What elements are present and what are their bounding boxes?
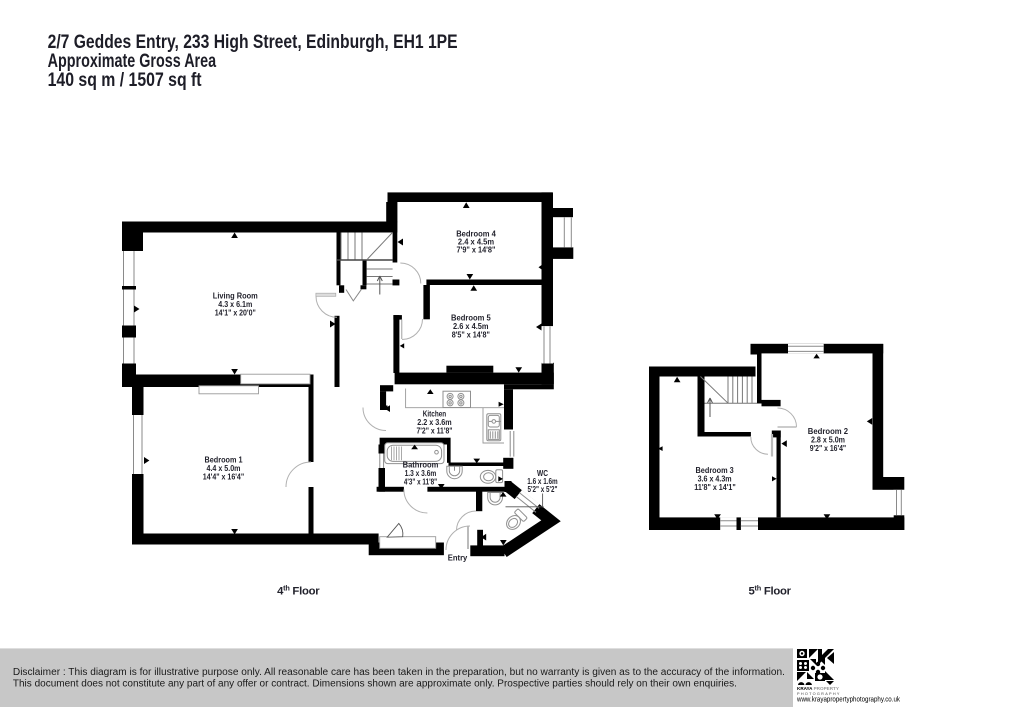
- svg-text:2/7 Geddes Entry, 233 High Str: 2/7 Geddes Entry, 233 High Street, Edinb…: [48, 32, 458, 53]
- svg-text:7'9" x 14'8": 7'9" x 14'8": [457, 245, 496, 255]
- svg-text:140 sq m / 1507 sq ft: 140 sq m / 1507 sq ft: [48, 70, 203, 91]
- svg-text:www.krayapropertyphotography.c: www.krayapropertyphotography.co.uk: [796, 697, 900, 704]
- svg-text:PHOTOGRAPHY: PHOTOGRAPHY: [797, 692, 841, 696]
- svg-text:Approximate Gross Area: Approximate Gross Area: [48, 51, 217, 72]
- svg-text:4'3" x 11'8": 4'3" x 11'8": [404, 477, 437, 487]
- svg-text:8'5" x 14'8": 8'5" x 14'8": [452, 330, 490, 340]
- svg-text:9'2" x 16'4": 9'2" x 16'4": [810, 443, 847, 453]
- svg-text:5'2" x 5'2": 5'2" x 5'2": [528, 484, 558, 494]
- svg-text:This document does not constit: This document does not constitute any pa…: [13, 679, 737, 690]
- svg-text:KRAYA PROPERTY: KRAYA PROPERTY: [797, 686, 839, 691]
- svg-text:Disclaimer : This diagram is f: Disclaimer : This diagram is for illustr…: [13, 667, 785, 678]
- svg-text:7'2" x 11'8": 7'2" x 11'8": [417, 426, 453, 436]
- svg-text:14'4" x 16'4": 14'4" x 16'4": [203, 472, 244, 482]
- svg-text:11'8" x 14'1": 11'8" x 14'1": [694, 482, 736, 492]
- svg-text:14'1" x 20'0": 14'1" x 20'0": [215, 307, 256, 317]
- svg-text:Entry: Entry: [448, 553, 468, 563]
